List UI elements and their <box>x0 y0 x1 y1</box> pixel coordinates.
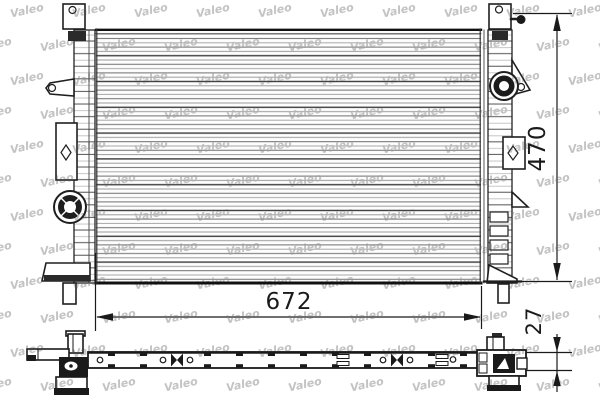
left-diamond-boss <box>56 123 77 180</box>
left-tank <box>42 4 95 304</box>
filler-neck-icon <box>490 72 518 100</box>
right-flag-bracket <box>512 192 528 207</box>
width-dimension-label: 672 <box>266 289 313 315</box>
arrow-down-icon <box>553 337 561 352</box>
radiator-bottom-view <box>27 331 527 395</box>
left-hose-port-icon <box>54 191 86 223</box>
arrow-up-icon <box>553 371 561 386</box>
top-left-mount-bracket <box>63 4 86 41</box>
arrow-left-icon <box>96 313 113 321</box>
thickness-dimension: 27 <box>522 307 572 392</box>
thickness-dimension-label: 27 <box>522 307 546 336</box>
radiator-front-view <box>42 4 530 304</box>
left-mount-assembly <box>27 331 89 395</box>
crossmember-bar <box>88 352 480 368</box>
height-dimension-label: 470 <box>525 125 551 172</box>
top-right-mount-bracket <box>489 4 526 40</box>
arrow-up-icon <box>553 14 561 31</box>
radiator-core <box>96 29 481 283</box>
arrow-down-icon <box>553 263 561 280</box>
arrow-right-icon <box>464 313 481 321</box>
right-tank <box>484 4 530 303</box>
right-diamond-boss <box>503 137 525 169</box>
left-upper-arm <box>46 79 74 96</box>
right-mount-assembly <box>477 333 527 391</box>
drawing-canvas: 672 470 27 <box>0 0 600 400</box>
radiator-technical-drawing: 672 470 27 <box>0 0 600 400</box>
